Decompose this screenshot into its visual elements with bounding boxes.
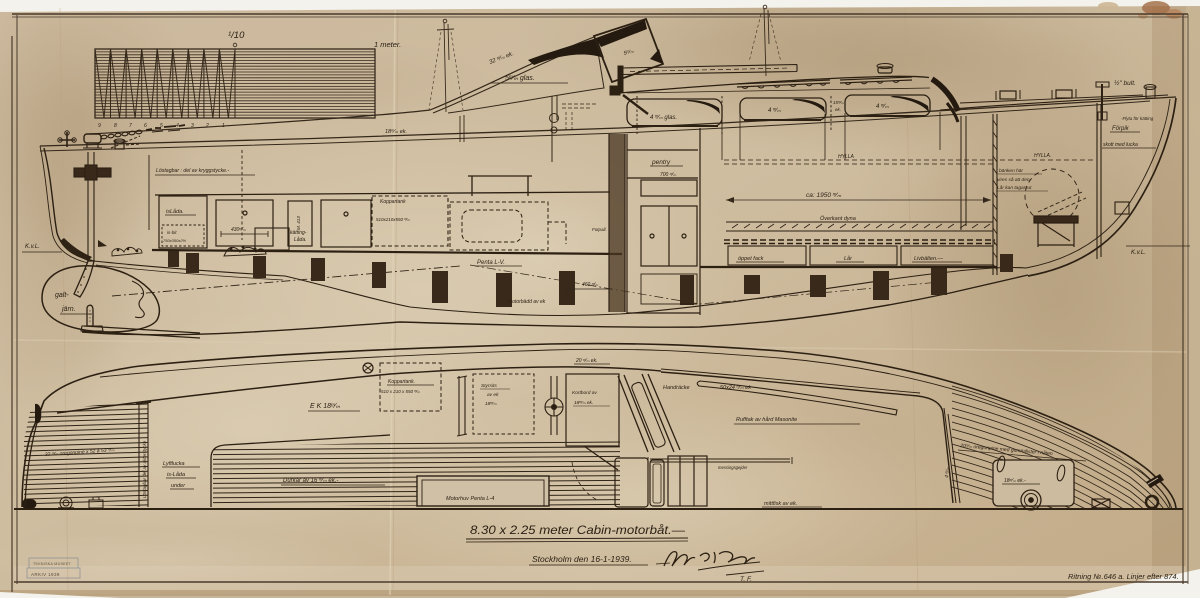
svg-text:18ᵐ⁄ₘ: 18ᵐ⁄ₘ: [485, 401, 497, 407]
svg-text:T. F.: T. F.: [740, 576, 752, 583]
svg-text:510 x 210 x 550 ᵐ⁄ₘ: 510 x 210 x 550 ᵐ⁄ₘ: [381, 389, 420, 394]
svg-text:¹/10: ¹/10: [228, 30, 245, 41]
svg-text:460 ᵐ⁄ₘ: 460 ᵐ⁄ₘ: [582, 282, 599, 288]
svg-text:bänken här: bänken här: [999, 168, 1023, 174]
svg-text:K.v.L.: K.v.L.: [25, 244, 40, 250]
svg-text:½" bult.: ½" bult.: [1114, 79, 1136, 87]
svg-text:5ᵐ⁄ₘ glas.: 5ᵐ⁄ₘ glas.: [505, 75, 535, 82]
svg-text:-Flyta för kätting: -Flyta för kätting: [1121, 116, 1154, 121]
svg-text:1 meter.: 1 meter.: [374, 40, 401, 49]
svg-text:18ᵐ⁄ₘ ek.: 18ᵐ⁄ₘ ek.: [385, 129, 407, 135]
svg-text:Fotpall.: Fotpall.: [592, 227, 607, 232]
svg-text:av ek: av ek: [487, 392, 499, 398]
svg-text:öppet fack: öppet fack: [738, 256, 764, 262]
svg-text:Livbälten.—: Livbälten.—: [914, 256, 944, 262]
svg-text:Låda.: Låda.: [294, 236, 307, 243]
svg-text:20 ᵐ⁄ₘ ek.: 20 ᵐ⁄ₘ ek.: [575, 358, 597, 364]
svg-text:is-Låda: is-Låda: [167, 471, 185, 478]
svg-text:Överkant dyna: Överkant dyna: [820, 215, 856, 222]
svg-text:4 ᵐ⁄ₘ: 4 ᵐ⁄ₘ: [876, 104, 889, 110]
svg-text:HYLLA.: HYLLA.: [1034, 153, 1051, 159]
svg-text:TEKNISKA MUSEET: TEKNISKA MUSEET: [33, 562, 72, 566]
svg-text:8.30 x 2.25 meter Cabin-motorb: 8.30 x 2.25 meter Cabin-motorbåt.—: [470, 523, 686, 537]
svg-text:motorbädd av ek: motorbädd av ek: [508, 299, 546, 305]
svg-text:Kortbord av: Kortbord av: [572, 390, 597, 396]
svg-text:ca: 1950 ᵐ⁄ₘ: ca: 1950 ᵐ⁄ₘ: [806, 192, 842, 199]
svg-text:skott med lucka: skott med lucka: [1103, 142, 1138, 148]
svg-text:Handräcke: Handräcke: [663, 385, 690, 391]
svg-text:is-bit: is-bit: [167, 230, 177, 235]
svg-text:9: 9: [98, 123, 101, 129]
svg-text:under: under: [171, 483, 186, 489]
svg-text:Penta L-V.: Penta L-V.: [477, 260, 505, 266]
svg-text:Lyftlucka: Lyftlucka: [163, 461, 185, 467]
svg-text:mittfisk av ek.: mittfisk av ek.: [764, 501, 797, 507]
svg-text:Löstagbar del av akterstycke: Löstagbar del av akterstycke: [142, 440, 147, 498]
svg-text:Koppartank: Koppartank: [380, 199, 406, 205]
svg-text:pentry: pentry: [651, 159, 671, 166]
svg-text:Motorhuv Penta L-4: Motorhuv Penta L-4: [446, 496, 494, 502]
svg-text:4: 4: [176, 123, 179, 129]
svg-text:ARKIV 1939: ARKIV 1939: [31, 572, 60, 577]
svg-text:Koppartank.: Koppartank.: [388, 379, 415, 385]
svg-text:Durkar av 16 ᵐ⁄ₘ ek.-: Durkar av 16 ᵐ⁄ₘ ek.-: [283, 478, 338, 484]
svg-text:Styrsits: Styrsits: [481, 383, 497, 389]
svg-text:Löstagbar : del av kryggstyc: Löstagbar : del av kryggstycke.-: [156, 168, 230, 174]
svg-text:K.v.L.: K.v.L.: [1131, 250, 1146, 256]
svg-text:4 ᵐ⁄ₘ glas.: 4 ᵐ⁄ₘ glas.: [650, 115, 677, 121]
svg-text:8: 8: [114, 123, 117, 129]
svg-text:Förpik: Förpik: [1112, 126, 1130, 132]
svg-text:6: 6: [144, 123, 147, 129]
svg-text:750x350x2½: 750x350x2½: [163, 238, 187, 243]
svg-text:18ᵐ⁄ₘ ek.-: 18ᵐ⁄ₘ ek.-: [1004, 478, 1026, 484]
svg-text:järn.: järn.: [61, 306, 76, 313]
svg-text:7: 7: [129, 123, 132, 129]
svg-text:HYLLA: HYLLA: [838, 154, 855, 160]
svg-text:Stockholm den 16-1-1939.: Stockholm den 16-1-1939.: [532, 554, 632, 564]
svg-text:E K 18ᵐ⁄ₘ: E K 18ᵐ⁄ₘ: [310, 403, 341, 410]
svg-text:messingsgejder: messingsgejder: [718, 465, 748, 470]
svg-text:ek.: ek.: [835, 107, 841, 112]
svg-text:50x24 ᵐ⁄ₘ ek: 50x24 ᵐ⁄ₘ ek: [720, 385, 751, 391]
svg-text:2: 2: [205, 123, 209, 129]
svg-text:18ᵐ⁄ₘ ek.: 18ᵐ⁄ₘ ek.: [574, 400, 593, 406]
svg-text:4 ᵐ⁄ₘ: 4 ᵐ⁄ₘ: [768, 108, 781, 114]
svg-text:700 ᵐ⁄ₘ: 700 ᵐ⁄ₘ: [660, 172, 677, 178]
svg-text:15ᵐ⁄ₘ: 15ᵐ⁄ₘ: [833, 100, 844, 105]
svg-text:430ᵐ⁄ₘ: 430ᵐ⁄ₘ: [231, 227, 247, 233]
svg-text:M. 413: M. 413: [296, 216, 301, 230]
svg-text:galt-: galt-: [55, 292, 69, 299]
svg-text:vires så att den: vires så att den: [997, 176, 1030, 183]
svg-text:510x210x550 ᵐ⁄ₘ: 510x210x550 ᵐ⁄ₘ: [376, 217, 410, 222]
svg-text:Ritning №.646 a. Linjer efte: Ritning №.646 a. Linjer efter 874.: [1068, 572, 1179, 581]
svg-text:Rufftak av hård Masonite: Rufftak av hård Masonite: [736, 416, 797, 423]
svg-text:Lår: Lår: [844, 255, 853, 262]
svg-text:isLåda.: isLåda.: [166, 208, 184, 215]
